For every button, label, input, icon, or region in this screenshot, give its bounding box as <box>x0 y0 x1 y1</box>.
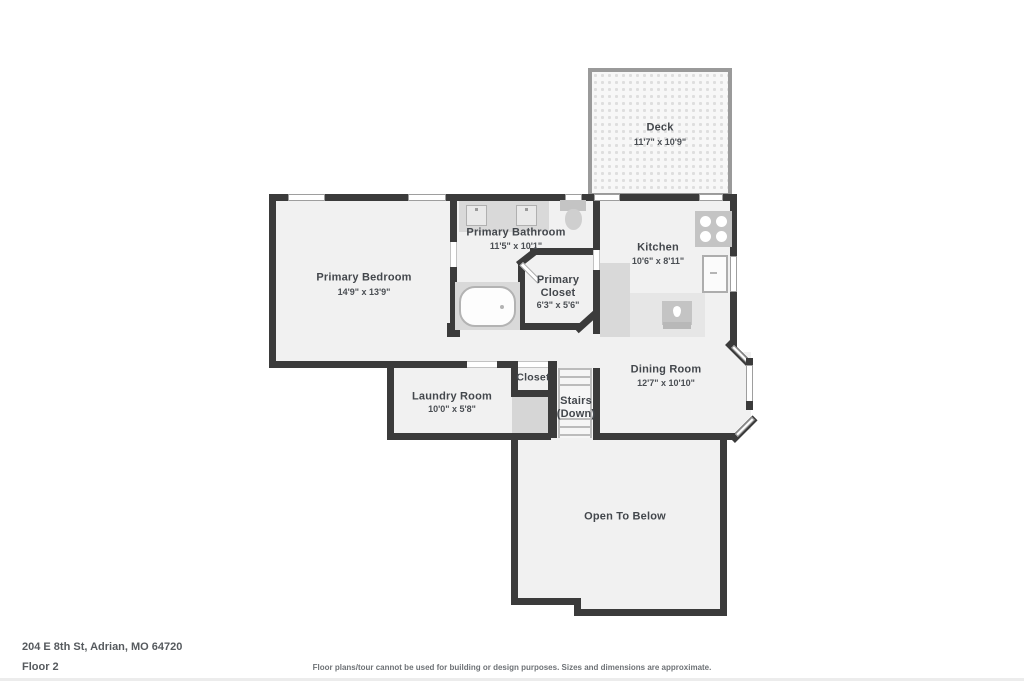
wall-otb-left <box>511 433 518 605</box>
kitchen-sink-front <box>663 322 691 329</box>
bedroom-window-2 <box>408 194 446 201</box>
primary-closet-dims: 6'3" x 5'6" <box>537 300 580 310</box>
kitchen-counter-left <box>600 263 630 337</box>
closet-door-opening <box>518 361 548 368</box>
stove-burner <box>716 231 727 242</box>
deck-label: Deck <box>646 122 673 135</box>
stove-burner <box>700 231 711 242</box>
faucet-dot-left <box>475 208 478 211</box>
wall-bedroom-bath-upper <box>450 194 457 242</box>
wall-bedroom-bottom <box>269 361 467 368</box>
stove-burner <box>716 216 727 227</box>
room-open-to-below-notch <box>578 595 727 610</box>
wall-laundry-left <box>387 361 394 440</box>
wall-laundry-bottom <box>387 433 516 440</box>
stairs-step <box>558 368 592 370</box>
wall-otb-top-tick <box>511 433 551 440</box>
kitchen-window <box>730 256 737 292</box>
wall-kitchen-right-lower <box>730 292 737 348</box>
wall-left <box>269 194 276 368</box>
stairs-step <box>558 384 592 386</box>
bedroom-door-opening <box>450 242 457 267</box>
closet-label: Closet <box>516 372 549 385</box>
address-text: 204 E 8th St, Adrian, MO 64720 <box>22 641 182 653</box>
primary-closet-label: Primary Closet <box>526 274 590 300</box>
refrigerator-handle-dash <box>710 272 717 274</box>
bath-kitchen-opening <box>593 250 600 270</box>
bay-window-center <box>746 365 753 403</box>
primary-bathroom-dims: 11'5" x 10'1" <box>490 241 542 251</box>
wall-top <box>269 194 737 201</box>
footer-divider <box>0 678 1024 681</box>
refrigerator-icon <box>702 255 728 293</box>
kitchen-dims: 10'6" x 8'11" <box>632 256 684 266</box>
faucet-dot-right <box>525 208 528 211</box>
dining-room-label: Dining Room <box>631 364 702 377</box>
wall-bath-kitchen-upper <box>593 194 600 250</box>
primary-bedroom-label: Primary Bedroom <box>316 272 411 285</box>
laundry-room-dims: 10'0" x 5'8" <box>428 404 476 414</box>
laundry-door-opening <box>467 361 497 368</box>
utility-block <box>512 397 548 433</box>
floor-plan: Deck 11'7" x 10'9" Primary Bedroom 14'9"… <box>0 0 1024 682</box>
laundry-room-label: Laundry Room <box>412 391 492 404</box>
wall-otb-bottom-right <box>574 609 727 616</box>
stove-burner <box>700 216 711 227</box>
wall-otb-bottom-left <box>511 598 581 605</box>
bedroom-window-1 <box>288 194 325 201</box>
wall-dining-bottom <box>593 433 737 440</box>
toilet-bowl-icon <box>565 209 582 230</box>
deck-dims: 11'7" x 10'9" <box>634 137 686 147</box>
tub-drain-dot <box>500 305 504 309</box>
wall-bath-kitchen-lower <box>593 270 600 334</box>
dining-room-dims: 12'7" x 10'10" <box>637 378 695 388</box>
stairs-label: Stairs (Down) <box>548 395 604 421</box>
wall-otb-right <box>720 438 727 616</box>
wall-pcloset-bottom <box>518 323 580 330</box>
primary-bedroom-dims: 14'9" x 13'9" <box>338 287 391 297</box>
stairs-step <box>558 426 592 428</box>
primary-bathroom-label: Primary Bathroom <box>466 227 565 240</box>
bathtub-icon <box>459 286 516 327</box>
disclaimer-text: Floor plans/tour cannot be used for buil… <box>0 663 1024 672</box>
stairs-step <box>558 376 592 378</box>
stove-icon <box>695 211 732 247</box>
open-to-below-label: Open To Below <box>584 511 666 524</box>
bay-jamb-bottom <box>746 401 753 410</box>
deck-door-1 <box>594 194 620 201</box>
deck-door-2 <box>699 194 723 201</box>
kitchen-label: Kitchen <box>637 242 679 255</box>
stairs-step <box>558 434 592 436</box>
